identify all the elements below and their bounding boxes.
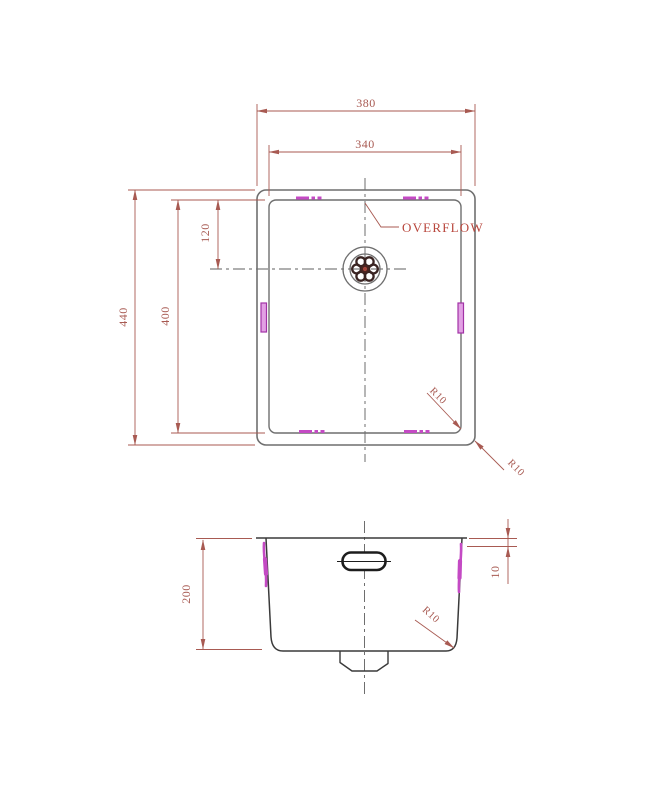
weld-seam-left-blob [265,559,266,574]
dimension-rim: 10 [467,519,517,584]
radius-callout-inner: R10 [427,386,461,429]
radius-text-outer: R10 [505,458,526,479]
overflow-callout: OVERFLOW [365,203,484,235]
radius-callout-bottom: R10 [415,605,454,648]
dim-text-400: 400 [158,306,172,326]
top-view: 380 340 440 400 120 [116,96,526,479]
radius-text-inner: R10 [427,386,448,407]
overflow-label: OVERFLOW [402,220,484,235]
dim-text-200: 200 [179,584,193,604]
dimension-drain-offset: 120 [198,200,218,269]
dim-text-120: 120 [198,223,212,243]
drain-fitting [340,651,388,671]
drain-center-cap [362,266,368,272]
dimension-depth: 200 [179,539,262,650]
technical-drawing-page: 380 340 440 400 120 [0,0,669,800]
overflow-slot [337,553,391,571]
dim-text-380: 380 [356,96,376,110]
overflow-leader-line [365,203,399,227]
dim-text-10: 10 [488,566,502,579]
radius-text-bottom: R10 [420,605,441,626]
weld-seam-right-blob [460,561,461,578]
sink-drawing-canvas: 380 340 440 400 120 [0,0,669,800]
clip-bar-left [261,303,267,332]
dim-text-440: 440 [116,307,130,327]
drain-waste [343,247,387,291]
dim-text-340: 340 [355,137,375,151]
side-view: 200 10 R10 [179,519,517,697]
radius-callout-outer: R10 [475,441,526,479]
dimension-outer-height: 440 [116,190,255,445]
clip-bar-right [458,303,464,333]
